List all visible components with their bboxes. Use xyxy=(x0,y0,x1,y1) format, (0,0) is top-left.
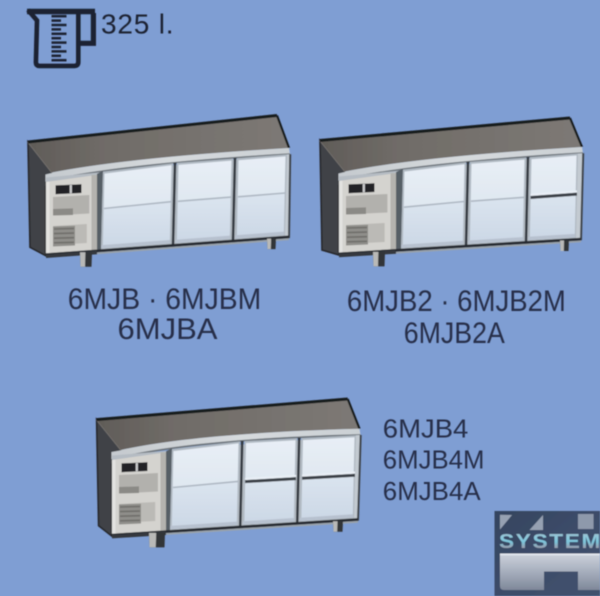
svg-text:6MJB2A: 6MJB2A xyxy=(404,317,505,350)
svg-text:6MJB · 6MJBM: 6MJB · 6MJBM xyxy=(68,283,262,316)
svg-text:6MJB4A: 6MJB4A xyxy=(383,476,481,506)
svg-text:6MJB4: 6MJB4 xyxy=(383,413,469,443)
svg-text:6MJBA: 6MJBA xyxy=(118,313,218,346)
svg-text:325 l.: 325 l. xyxy=(101,9,174,40)
svg-text:6MJB2 · 6MJB2M: 6MJB2 · 6MJB2M xyxy=(347,285,566,318)
svg-text:6MJB4M: 6MJB4M xyxy=(383,445,485,475)
svg-text:SYSTEM: SYSTEM xyxy=(499,530,600,553)
